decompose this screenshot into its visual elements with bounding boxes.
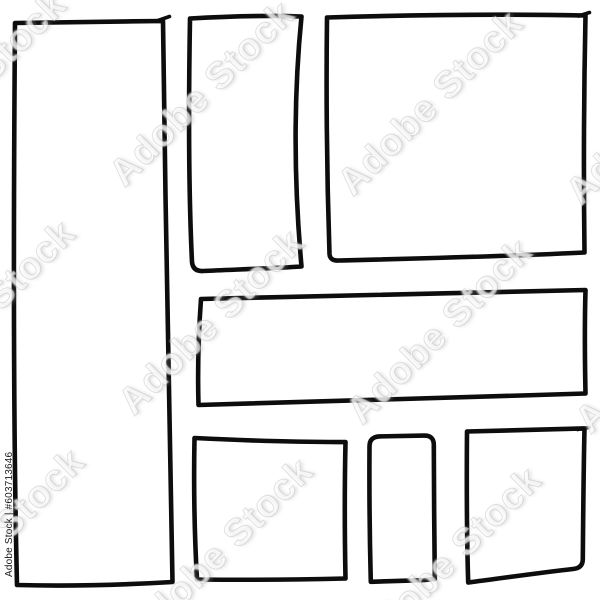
stock-image-canvas: Adobe StockAdobe StockAdobe StockAdobe S… bbox=[0, 0, 600, 600]
panel-left-tall-outline bbox=[14, 21, 173, 586]
panel-top-right-outline bbox=[327, 15, 586, 261]
stock-id-edge-label: Adobe Stock | #603713646 bbox=[4, 452, 15, 577]
panel-bottom-left-outline bbox=[194, 438, 345, 580]
corner-tick-icon bbox=[158, 17, 170, 21]
panel-middle-banner-outline bbox=[198, 290, 585, 405]
corner-tick-icon bbox=[578, 428, 590, 430]
panel-bottom-right-outline bbox=[467, 428, 585, 582]
comic-panel-line-art bbox=[0, 0, 600, 600]
panel-bottom-middle-outline bbox=[369, 436, 434, 582]
corner-tick-icon bbox=[579, 13, 590, 17]
panel-top-middle-outline bbox=[189, 16, 301, 271]
